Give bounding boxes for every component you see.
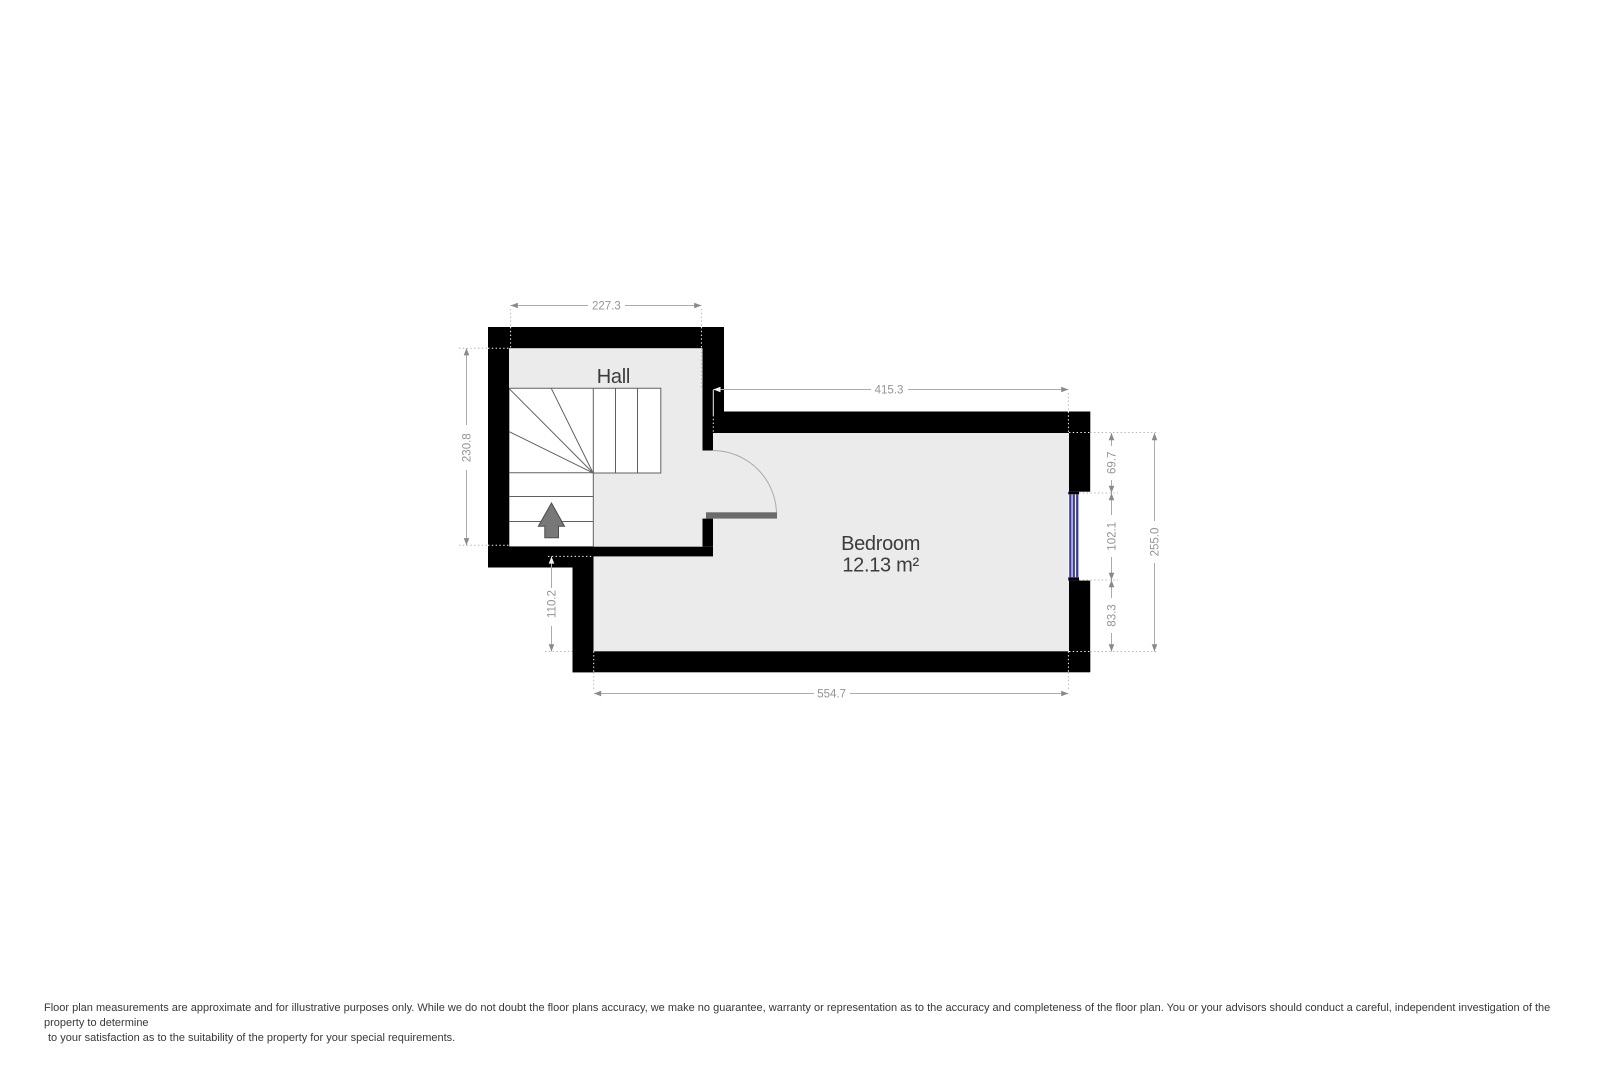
svg-text:Bedroom: Bedroom: [841, 533, 920, 555]
svg-text:255.0: 255.0: [1150, 528, 1162, 557]
svg-text:102.1: 102.1: [1107, 522, 1119, 551]
svg-text:to your satisfaction as to the: to your satisfaction as to the suitabili…: [48, 1032, 455, 1044]
svg-text:230.8: 230.8: [461, 433, 473, 462]
svg-text:69.7: 69.7: [1107, 452, 1119, 474]
svg-text:property to determine: property to determine: [44, 1017, 149, 1029]
svg-text:83.3: 83.3: [1107, 604, 1119, 626]
svg-text:110.2: 110.2: [547, 590, 559, 618]
svg-text:12.13 m²: 12.13 m²: [842, 555, 919, 577]
svg-text:Floor plan measurements are ap: Floor plan measurements are approximate …: [44, 1002, 1550, 1014]
svg-text:227.3: 227.3: [592, 300, 621, 312]
svg-text:554.7: 554.7: [817, 689, 846, 701]
svg-text:415.3: 415.3: [875, 384, 904, 396]
svg-text:Hall: Hall: [597, 366, 630, 388]
